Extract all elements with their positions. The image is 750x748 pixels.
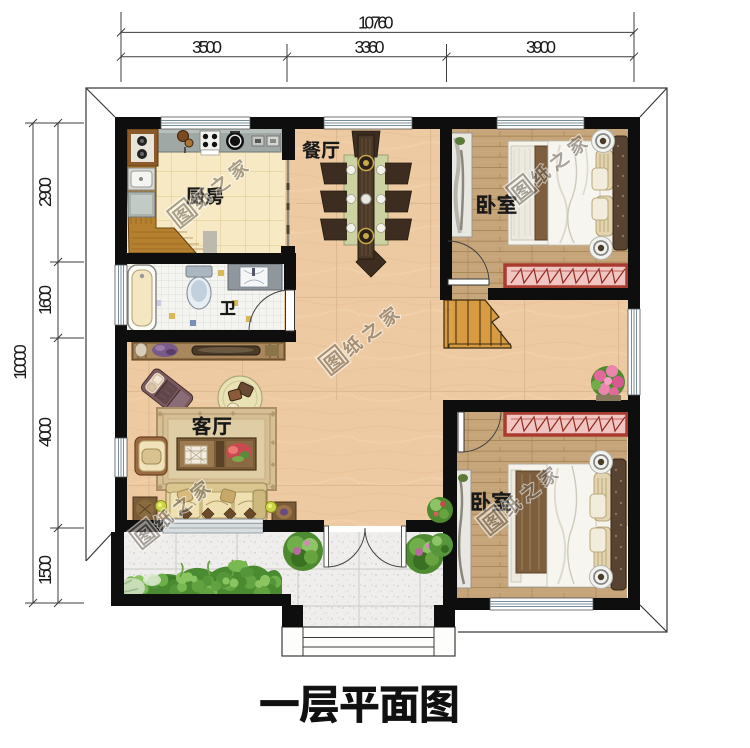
svg-text:10760: 10760 bbox=[358, 13, 394, 33]
svg-text:1600: 1600 bbox=[35, 285, 55, 315]
svg-text:3360: 3360 bbox=[355, 37, 385, 57]
svg-text:10000: 10000 bbox=[10, 344, 30, 380]
svg-text:2900: 2900 bbox=[35, 177, 55, 207]
svg-text:3500: 3500 bbox=[192, 37, 222, 57]
svg-text:4000: 4000 bbox=[35, 417, 55, 447]
svg-text:1500: 1500 bbox=[35, 555, 55, 585]
svg-text:3900: 3900 bbox=[526, 37, 556, 57]
